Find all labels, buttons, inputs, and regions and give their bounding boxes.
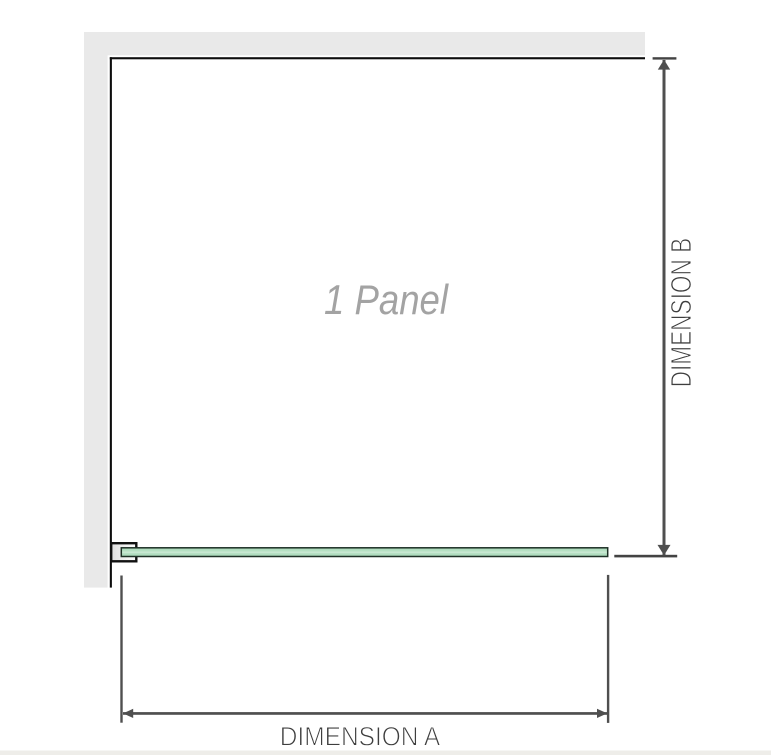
svg-text:1 Panel: 1 Panel	[324, 276, 449, 323]
svg-text:DIMENSION A: DIMENSION A	[280, 721, 441, 751]
svg-text:DIMENSION B: DIMENSION B	[666, 238, 698, 388]
